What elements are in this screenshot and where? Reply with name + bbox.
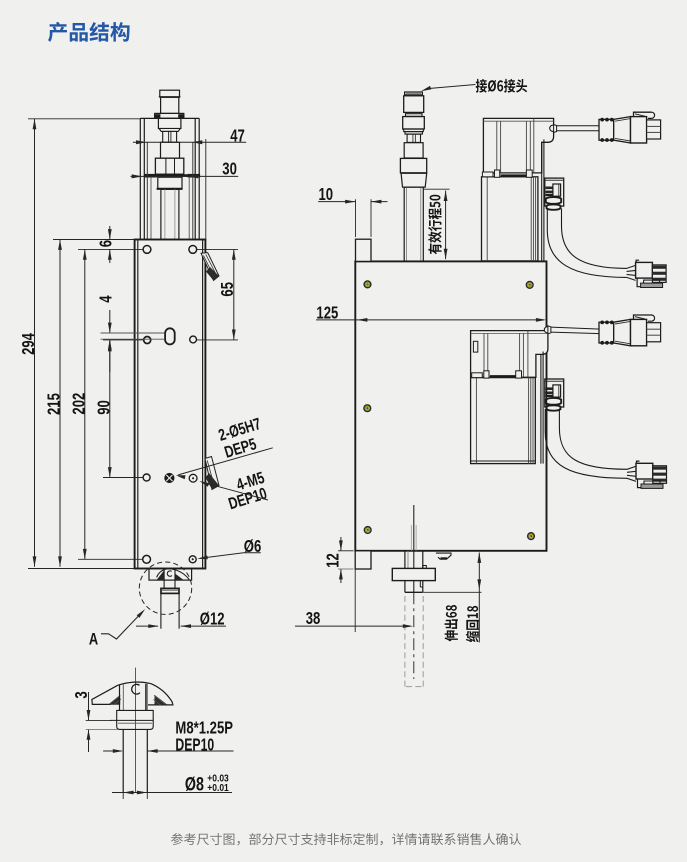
svg-text:12: 12 (324, 553, 343, 568)
svg-text:30: 30 (222, 160, 237, 179)
svg-text:DEP10: DEP10 (175, 735, 214, 755)
svg-text:4: 4 (97, 295, 116, 303)
svg-text:+0.01: +0.01 (207, 782, 228, 793)
svg-text:Ø8: Ø8 (185, 773, 204, 794)
svg-text:215: 215 (45, 393, 64, 415)
svg-text:Ø12: Ø12 (200, 610, 225, 629)
svg-text:6: 6 (97, 240, 116, 248)
svg-text:202: 202 (70, 393, 89, 415)
svg-text:A: A (89, 631, 99, 649)
svg-text:90: 90 (95, 400, 114, 415)
svg-text:Ø6: Ø6 (244, 537, 262, 556)
svg-text:65: 65 (218, 282, 237, 297)
svg-text:294: 294 (19, 333, 38, 355)
svg-text:47: 47 (230, 127, 245, 146)
